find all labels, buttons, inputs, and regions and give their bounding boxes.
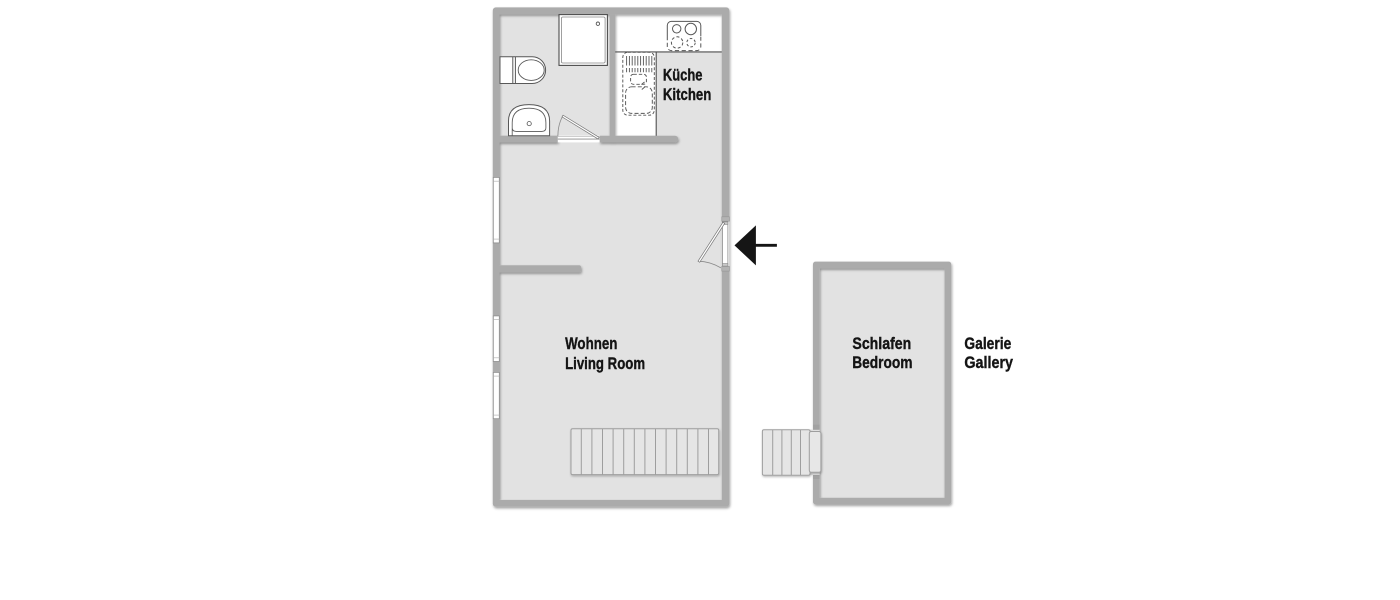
svg-text:Bedroom: Bedroom bbox=[852, 353, 912, 372]
svg-text:Kitchen: Kitchen bbox=[663, 85, 711, 104]
svg-text:Wohnen: Wohnen bbox=[565, 334, 617, 353]
svg-text:Living Room: Living Room bbox=[565, 354, 645, 373]
svg-text:Gallery: Gallery bbox=[964, 353, 1013, 372]
svg-text:Küche: Küche bbox=[663, 65, 703, 84]
svg-text:Schlafen: Schlafen bbox=[852, 334, 911, 353]
svg-text:Galerie: Galerie bbox=[964, 334, 1011, 353]
